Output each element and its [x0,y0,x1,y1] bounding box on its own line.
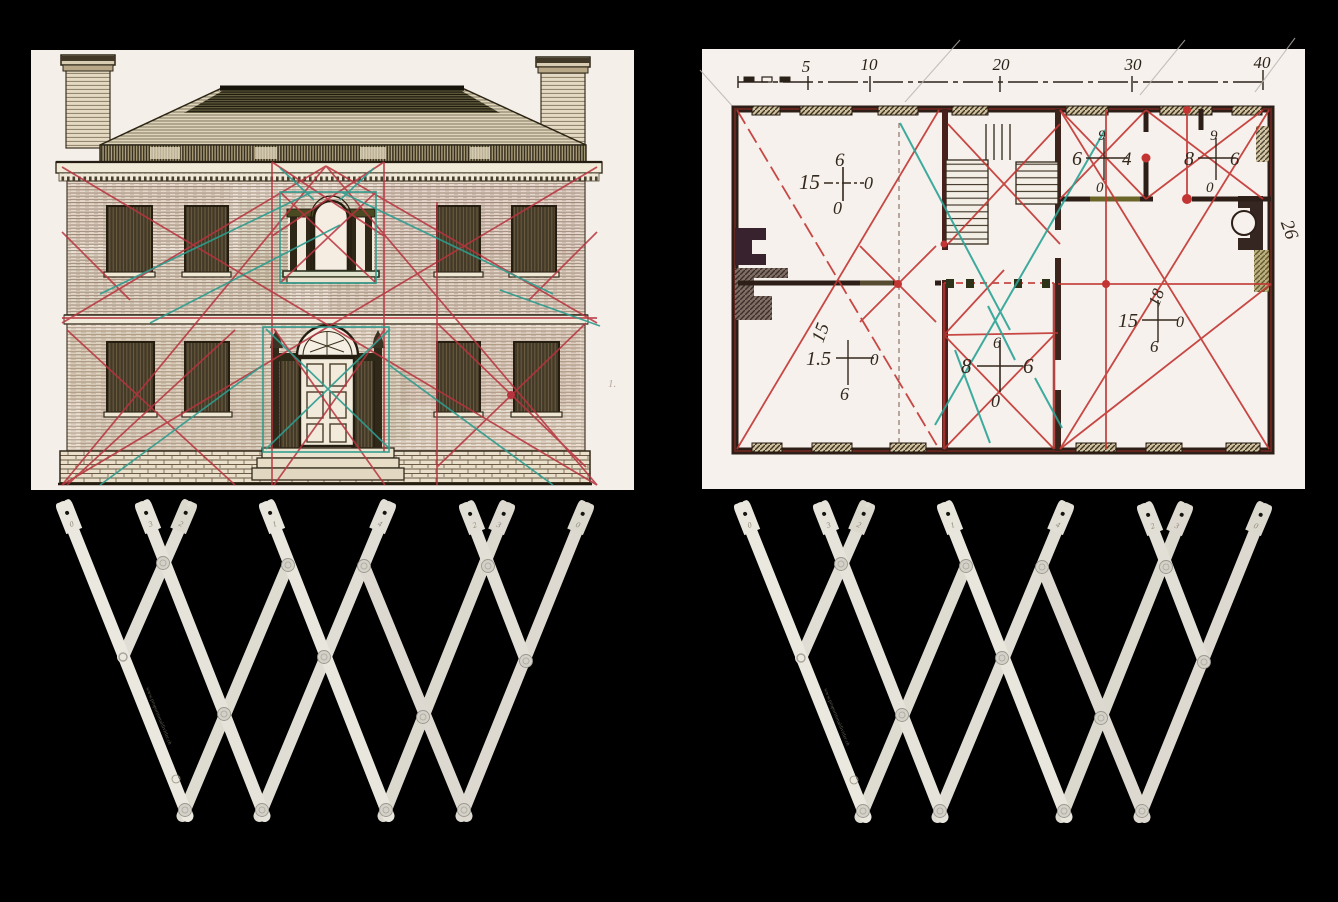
svg-text:20: 20 [993,55,1011,74]
svg-text:0: 0 [870,350,879,369]
svg-text:0: 0 [1096,180,1104,196]
svg-text:0: 0 [1206,180,1214,196]
svg-text:1.5: 1.5 [806,348,831,370]
svg-text:30: 30 [1124,55,1143,74]
svg-text:15: 15 [799,170,820,194]
svg-text:6: 6 [835,150,845,171]
svg-text:6: 6 [1072,148,1082,170]
svg-text:4: 4 [1122,149,1132,170]
svg-text:1.: 1. [608,378,616,390]
svg-text:5: 5 [802,57,811,76]
svg-text:9: 9 [1210,128,1218,144]
svg-text:6: 6 [1023,354,1034,378]
svg-text:8: 8 [1184,148,1194,170]
svg-text:0: 0 [1176,314,1184,331]
svg-text:6: 6 [1230,149,1240,170]
svg-text:10: 10 [861,55,879,74]
svg-text:0: 0 [864,173,873,193]
svg-text:40: 40 [1254,53,1272,72]
svg-text:0: 0 [833,198,842,218]
svg-text:0: 0 [991,391,1000,411]
svg-text:6: 6 [1150,337,1159,356]
svg-text:9: 9 [1098,128,1106,144]
svg-text:6: 6 [993,335,1001,352]
svg-text:8: 8 [961,354,972,378]
svg-text:15: 15 [1118,310,1138,332]
svg-text:6: 6 [840,384,849,404]
